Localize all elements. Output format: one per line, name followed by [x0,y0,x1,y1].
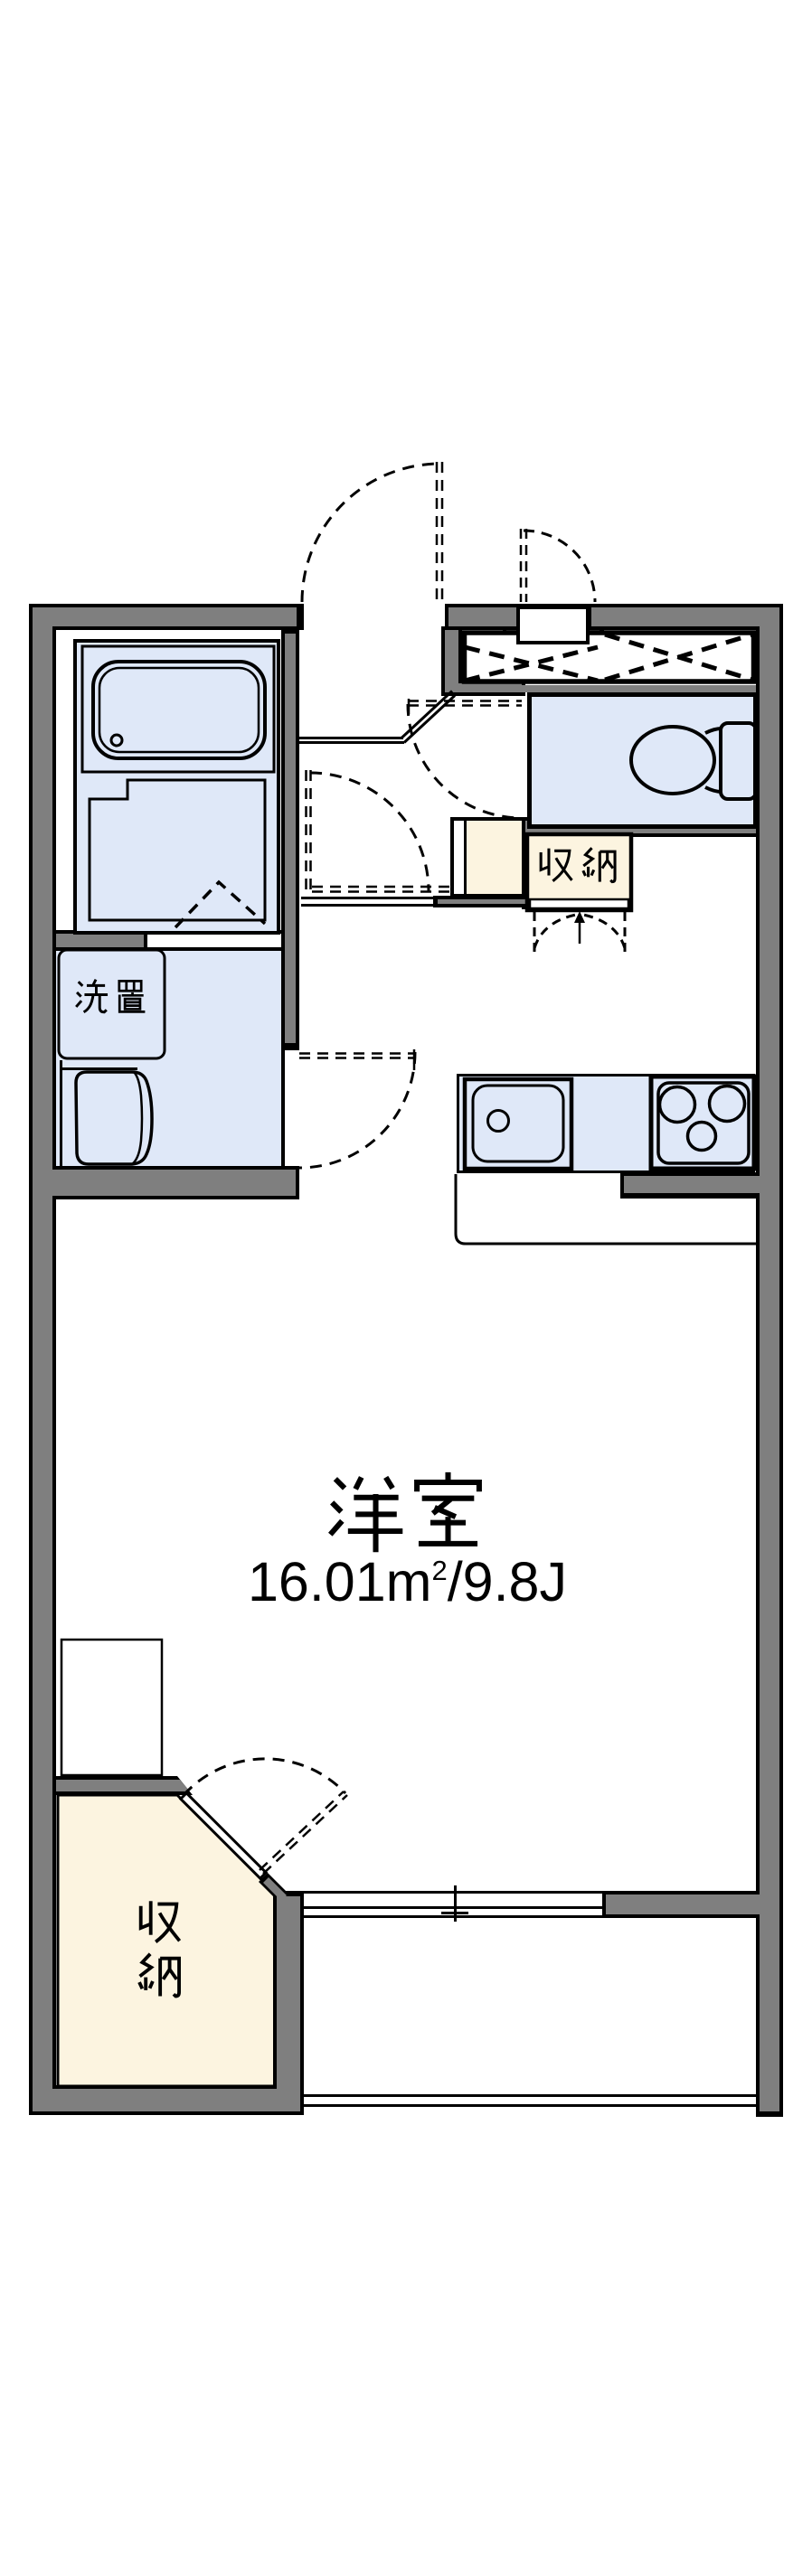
svg-text:16.01m2/9.8J: 16.01m2/9.8J [248,1551,567,1612]
